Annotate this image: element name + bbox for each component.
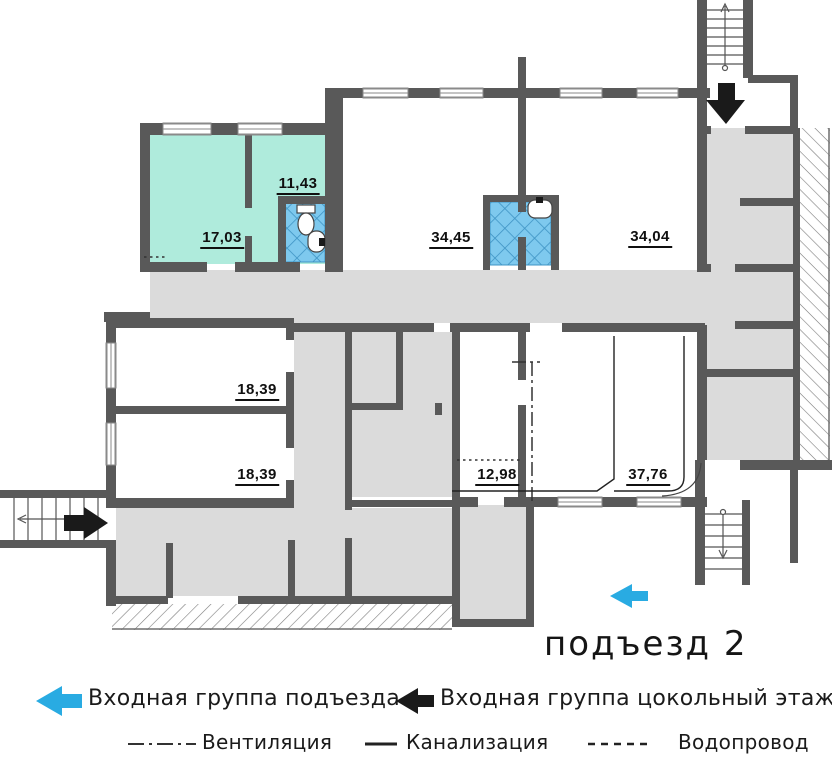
legend-sewerage-line [363,738,399,750]
room-area-label: 12,98 [475,466,519,486]
legend-ventilation-line [126,738,198,750]
entrance-arrow-down-icon [706,83,745,124]
room-area-label: 18,39 [235,381,279,401]
legend-water-line [586,738,652,750]
legend: Входная группа подъезда Входная группа ц… [0,682,832,768]
legend-blue-arrow-icon [36,686,84,718]
room-area-label: 18,39 [235,466,279,486]
floor-plan-drawing [0,0,832,670]
room-area-label: 37,76 [626,466,670,486]
room-area-label: 34,04 [628,228,672,248]
entrance-label: подъезд 2 [544,624,748,664]
room-area-label: 34,45 [429,229,473,249]
legend-black-arrow-icon [396,688,436,716]
toilet-icon [297,205,315,235]
legend-entrance-basement-label: Входная группа цокольный этаж [440,686,832,711]
staircase-top-right [707,4,743,71]
legend-water-label: Водопровод [678,730,809,754]
legend-entrance-building-label: Входная группа подъезда [88,686,400,711]
legend-sewerage-label: Канализация [406,730,548,754]
staircase-bottom-right [705,510,742,570]
floor-plan-page: 17,03 11,43 34,45 34,04 18,39 18,39 12,9… [0,0,832,768]
room-area-label: 11,43 [277,175,320,195]
entrance-arrow-blue-icon [610,584,648,608]
legend-ventilation-label: Вентиляция [202,730,332,754]
sink-icon [308,231,325,252]
room-area-label: 17,03 [200,229,244,249]
